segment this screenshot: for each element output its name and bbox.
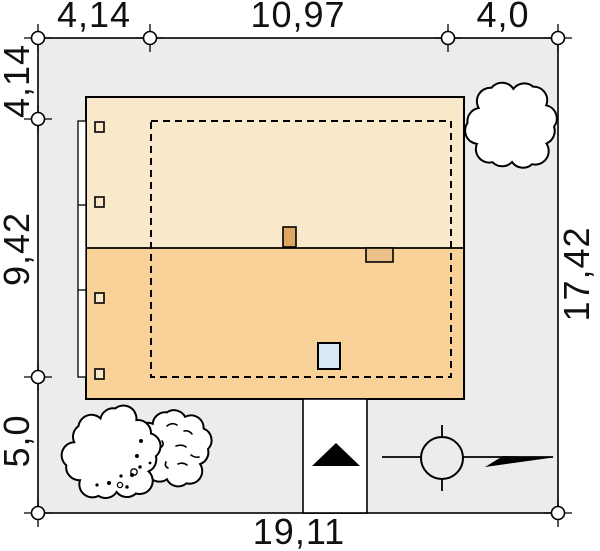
chimney	[366, 248, 393, 262]
skylight-window	[318, 343, 340, 369]
dimension-label-top-1: 4,14	[57, 0, 131, 33]
roof-window	[95, 122, 104, 132]
roof-window	[95, 197, 104, 207]
chimney	[283, 227, 296, 247]
dimension-label-right-1: 17,42	[559, 226, 595, 321]
house-roof-upper	[86, 97, 464, 248]
roof-window	[95, 293, 104, 303]
dimension-label-top-3: 4,0	[476, 0, 529, 33]
tree-icon	[465, 83, 557, 168]
dimension-label-left-3: 5,0	[0, 414, 35, 467]
dimension-label-top-2: 10,97	[250, 0, 345, 33]
dimension-label-left-2: 9,42	[0, 212, 35, 286]
dimension-label-bottom-1: 19,11	[253, 514, 345, 550]
site-plan: 4,14 10,97 4,0 4,14 9,42 5,0 17,42 19,11	[0, 0, 600, 551]
roof-window	[95, 369, 104, 379]
dimension-label-left-1: 4,14	[0, 44, 35, 118]
terrace-strip	[78, 121, 86, 377]
